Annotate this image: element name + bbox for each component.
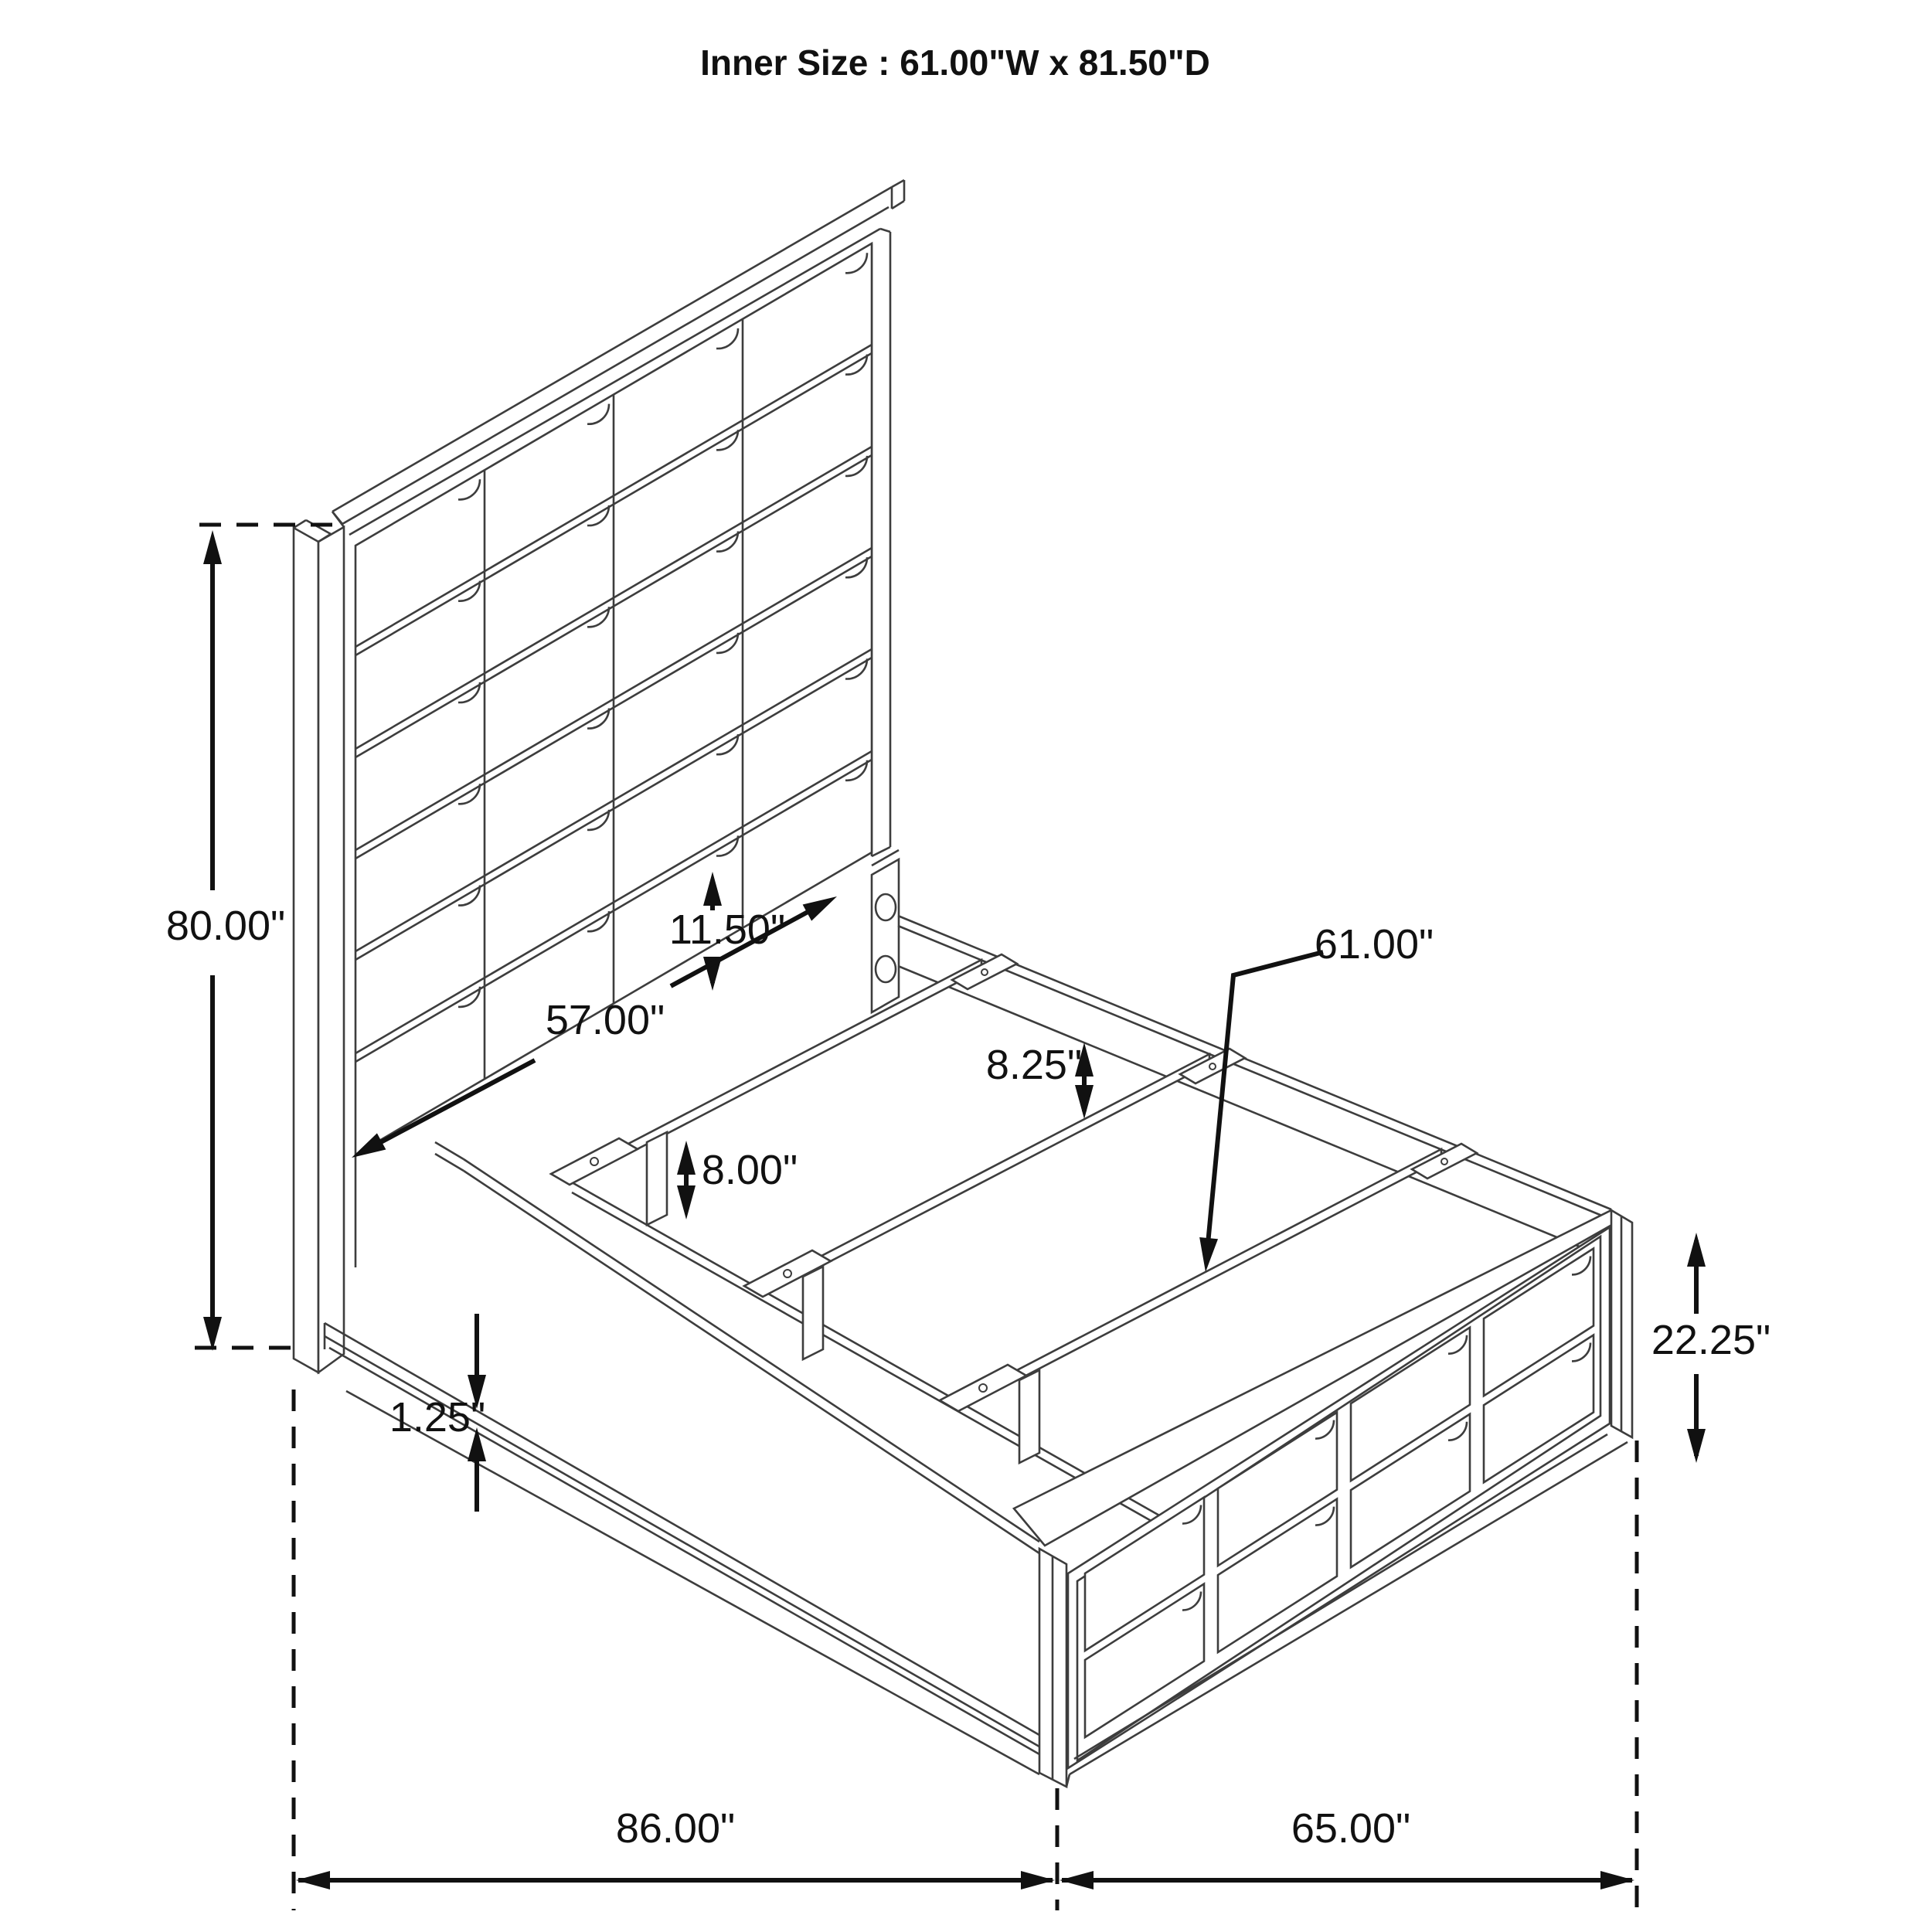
bed-line-art xyxy=(294,180,1632,1787)
bed-dimension-diagram-page: Inner Size : 61.00"W x 81.50"D 80.00" 11… xyxy=(0,0,1932,1932)
diagram-title: Inner Size : 61.00"W x 81.50"D xyxy=(700,43,1210,83)
dim-overall-width-label: 65.00" xyxy=(1291,1805,1410,1852)
dim-panel-lower-label: 11.50" xyxy=(669,906,785,953)
dim-rail-lip-label: 1.25" xyxy=(389,1394,485,1440)
bed-dimension-diagram: Inner Size : 61.00"W x 81.50"D 80.00" 11… xyxy=(0,0,1932,1932)
dim-side-rail-height-label: 8.25" xyxy=(986,1042,1082,1088)
dim-slat-length-label: 61.00" xyxy=(1315,921,1434,968)
dim-footboard-height-label: 22.25" xyxy=(1651,1317,1770,1363)
dim-headboard-height-label: 80.00" xyxy=(166,903,285,949)
dim-overall-length-label: 86.00" xyxy=(616,1805,735,1852)
dim-center-leg-height-label: 8.00" xyxy=(702,1147,798,1193)
dim-inner-rail-span-label: 57.00" xyxy=(546,997,665,1043)
